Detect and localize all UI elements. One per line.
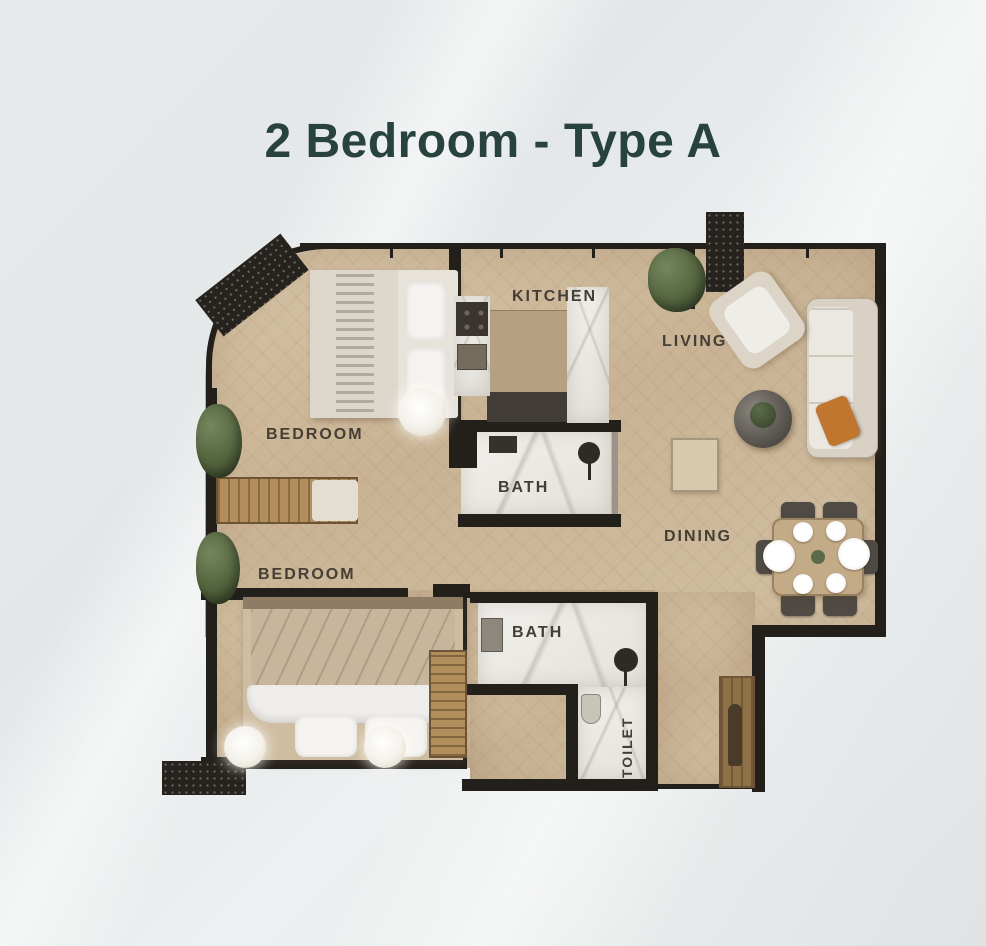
label-bath-2: BATH — [512, 624, 563, 642]
entry-cabinet-decor — [728, 704, 742, 766]
bed-2-headboard — [243, 597, 463, 609]
label-toilet: TOILET — [619, 700, 635, 778]
coffee-table — [734, 390, 792, 448]
dining-centerpiece — [811, 550, 825, 564]
plant-bedroom2 — [196, 532, 240, 604]
kitchen-marble-strip — [567, 287, 609, 423]
wall-bath2-top — [470, 592, 650, 603]
window-tick — [500, 249, 503, 258]
plant-living — [648, 248, 706, 312]
window-tick — [390, 249, 393, 258]
coffee-table-plant — [750, 402, 776, 428]
wall-toilet-left — [566, 684, 578, 784]
floor-plan: BEDROOM KITCHEN LIVING BATH BEDROOM DINI… — [0, 0, 986, 946]
dining-plate — [826, 521, 846, 541]
bath1-shower-glass — [612, 432, 618, 514]
toilet-fixture — [581, 694, 601, 724]
bedroom1-bench-cushion — [312, 480, 358, 521]
wall-bath1-bottom — [458, 514, 621, 527]
wall-toilet-bottom — [462, 779, 658, 791]
dining-plate — [838, 538, 870, 570]
bed-1-pillow — [406, 282, 446, 340]
wall-dining-bottom — [752, 625, 886, 637]
dining-plate — [793, 574, 813, 594]
window-tick — [592, 249, 595, 258]
label-bath-1: BATH — [498, 479, 549, 497]
label-kitchen: KITCHEN — [512, 288, 597, 306]
wall-bath2-bottom — [466, 684, 578, 695]
kitchen-counter-dark — [487, 392, 569, 422]
bath2-shower-head — [614, 648, 638, 672]
bedside-lamp-2 — [224, 726, 266, 768]
wall-bath-corridor — [646, 592, 658, 787]
sofa — [806, 298, 878, 458]
bed-2-duvet — [251, 609, 455, 691]
hatch-marker-top — [706, 212, 744, 292]
wardrobe — [429, 650, 467, 758]
label-bedroom-1: BEDROOM — [266, 426, 364, 444]
side-table — [671, 438, 719, 492]
bath1-shower-head — [578, 442, 600, 464]
kitchen-stove — [456, 302, 488, 336]
armchair-cushion — [720, 283, 793, 358]
dining-plate — [793, 522, 813, 542]
bedside-lamp-3 — [364, 726, 406, 768]
wall-bath1-corner — [449, 420, 477, 468]
bath1-shower-arm — [588, 462, 591, 480]
label-bedroom-2: BEDROOM — [258, 566, 356, 584]
bed-1-blanket-stripes — [336, 274, 374, 414]
plant-bedroom1 — [196, 404, 242, 478]
hatch-marker-bottom-left — [162, 761, 246, 795]
bath2-sink — [481, 618, 503, 652]
kitchen-sink — [457, 344, 487, 370]
label-living: LIVING — [662, 333, 727, 351]
window-tick — [806, 249, 809, 258]
bath1-sink — [489, 436, 517, 453]
bedside-lamp-1 — [398, 388, 446, 436]
bath2-shower-arm — [624, 670, 627, 686]
label-dining: DINING — [664, 528, 732, 546]
dining-plate — [763, 540, 795, 572]
dining-plate — [826, 573, 846, 593]
bed-2-pillow — [295, 715, 357, 757]
kitchen-cabinets — [487, 310, 569, 394]
